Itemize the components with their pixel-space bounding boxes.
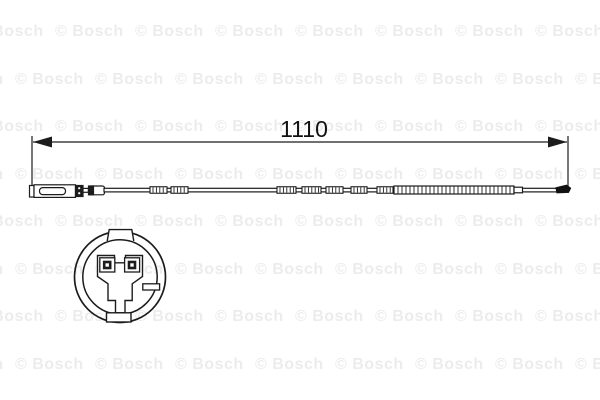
dimension-value: 1110 xyxy=(280,116,328,142)
grommet-band xyxy=(89,186,94,195)
connector-face-view xyxy=(75,230,166,323)
pin-right xyxy=(129,262,135,268)
key-tab-right xyxy=(143,284,160,290)
sensor-tip xyxy=(556,185,571,193)
sleeve-end-fitting xyxy=(514,187,523,193)
latch-hole xyxy=(78,187,80,189)
wear-sensor-side-view xyxy=(30,185,571,198)
connector-end-notch xyxy=(30,186,35,198)
index-tab-bottom xyxy=(107,313,132,322)
product-image: © Bosch© Bosch© Bosch© Bosch© Bosch© Bos… xyxy=(0,0,600,400)
dimension-annotation: 1110 xyxy=(32,116,568,196)
dimension-arrow-left xyxy=(33,137,52,148)
cable-neck xyxy=(83,188,89,192)
pin-left xyxy=(104,262,110,268)
latch-hole xyxy=(78,192,80,194)
connector-slot xyxy=(40,188,66,195)
dimension-arrow-right xyxy=(548,137,567,148)
sensor-technical-drawing: 1110 xyxy=(0,0,600,400)
